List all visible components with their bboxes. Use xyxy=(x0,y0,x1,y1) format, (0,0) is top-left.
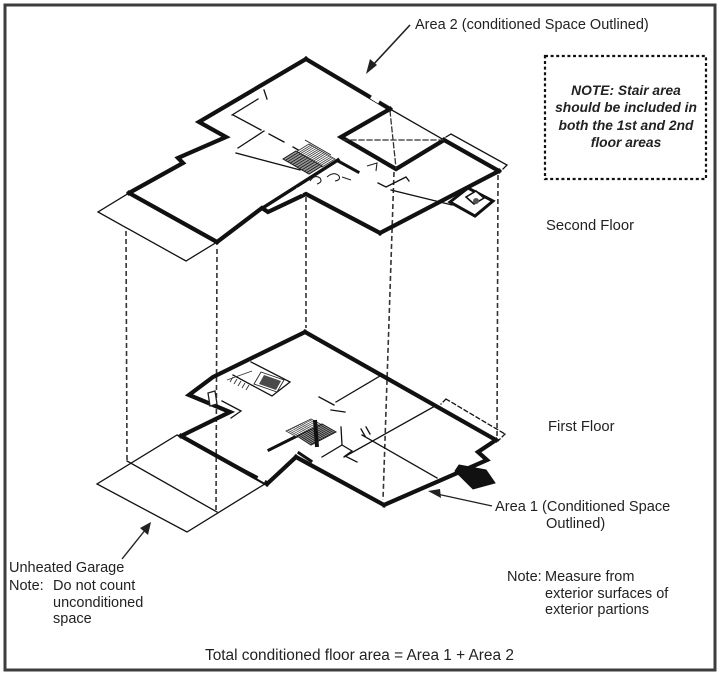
svg-text:Do not count: Do not count xyxy=(53,578,135,594)
svg-text:Area 1 (Conditioned Space: Area 1 (Conditioned Space xyxy=(495,499,670,515)
svg-text:space: space xyxy=(53,611,92,627)
svg-text:Outlined): Outlined) xyxy=(546,516,605,532)
svg-text:Unheated Garage: Unheated Garage xyxy=(9,560,124,576)
svg-text:Second Floor: Second Floor xyxy=(546,218,634,234)
svg-text:unconditioned: unconditioned xyxy=(53,595,143,611)
svg-text:exterior partions: exterior partions xyxy=(545,602,649,618)
svg-text:First Floor: First Floor xyxy=(548,419,615,435)
svg-text:floor areas: floor areas xyxy=(591,135,662,150)
svg-text:should be included in: should be included in xyxy=(555,100,697,115)
svg-text:Measure from: Measure from xyxy=(545,569,634,585)
svg-text:Area 2 (conditioned Space Outl: Area 2 (conditioned Space Outlined) xyxy=(415,17,649,33)
svg-text:exterior surfaces of: exterior surfaces of xyxy=(545,586,669,602)
svg-text:NOTE: Stair area: NOTE: Stair area xyxy=(571,83,681,98)
svg-text:Note:: Note: xyxy=(9,578,44,594)
svg-text:both the 1st and 2nd: both the 1st and 2nd xyxy=(559,118,694,133)
svg-text:Note:: Note: xyxy=(507,569,542,585)
svg-text:Total conditioned floor area =: Total conditioned floor area = Area 1 + … xyxy=(205,647,514,664)
